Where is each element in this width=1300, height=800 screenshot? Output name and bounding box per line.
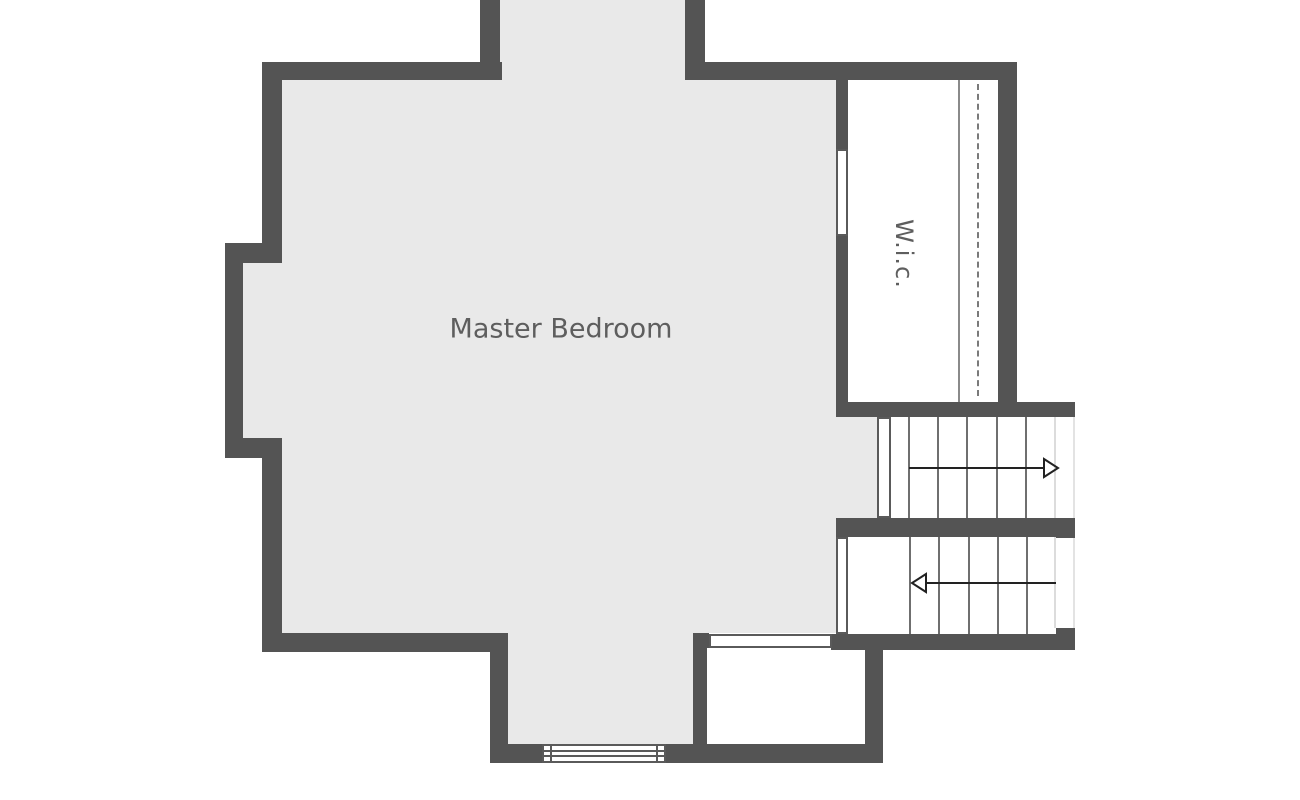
wall-left-upper	[262, 62, 282, 243]
wic-room	[848, 80, 998, 403]
bottom-right-room	[707, 648, 865, 745]
tread-line	[1025, 417, 1027, 518]
floor-plan: Master Bedroom W.i.c.	[0, 0, 1300, 800]
window-frame-line	[550, 746, 552, 761]
wall-bottom-left	[262, 633, 508, 652]
tread-line	[996, 417, 998, 518]
master-bedroom-floor-top-bump	[500, 0, 685, 82]
tread-line	[1026, 537, 1028, 634]
window	[542, 744, 666, 763]
wall-stair-mid	[836, 518, 1056, 537]
tread-line	[966, 417, 968, 518]
closet-rod-dashed-line	[977, 84, 979, 396]
window-frame-line	[544, 755, 664, 757]
wic-label: W.i.c.	[890, 219, 918, 289]
master-bedroom-label: Master Bedroom	[450, 314, 673, 345]
wall-wic-right	[998, 80, 1017, 403]
wic-door	[836, 149, 848, 236]
wall-left-jog-bottom	[225, 438, 282, 458]
tread-line	[997, 537, 999, 634]
wall-opening	[709, 634, 832, 648]
tread-line	[908, 417, 910, 518]
master-bedroom-floor-left-bump	[243, 263, 283, 438]
wall-left-bump	[225, 263, 243, 438]
tread-line	[938, 537, 940, 634]
wall-top-right	[685, 62, 1017, 80]
master-bedroom-floor-bottom-ext	[508, 633, 693, 745]
wall-bump-left	[480, 0, 500, 80]
stair-lower-run	[848, 537, 1056, 634]
master-bedroom-floor	[282, 80, 836, 633]
wall-bedroom-wic-divider	[836, 80, 848, 403]
master-bedroom-floor-stair-nook	[836, 417, 877, 518]
wall-top-left	[262, 62, 502, 80]
wall-left-lower	[262, 458, 282, 652]
window-frame-line	[656, 746, 658, 761]
wall-room-left	[693, 633, 707, 763]
wall-stair-mid-stub	[1056, 518, 1075, 538]
stair-upper-entry-strip	[877, 417, 891, 518]
wall-left-jog-top	[225, 243, 282, 263]
wall-stair-bottom-stub	[1056, 628, 1075, 650]
closet-shelf-line	[958, 80, 960, 402]
stair-lower-door	[836, 537, 848, 634]
wall-stair-top	[836, 402, 1075, 417]
window-frame-line	[544, 750, 664, 752]
tread-line	[937, 417, 939, 518]
wall-room-right	[865, 647, 883, 763]
tread-line	[968, 537, 970, 634]
tread-line	[909, 537, 911, 634]
